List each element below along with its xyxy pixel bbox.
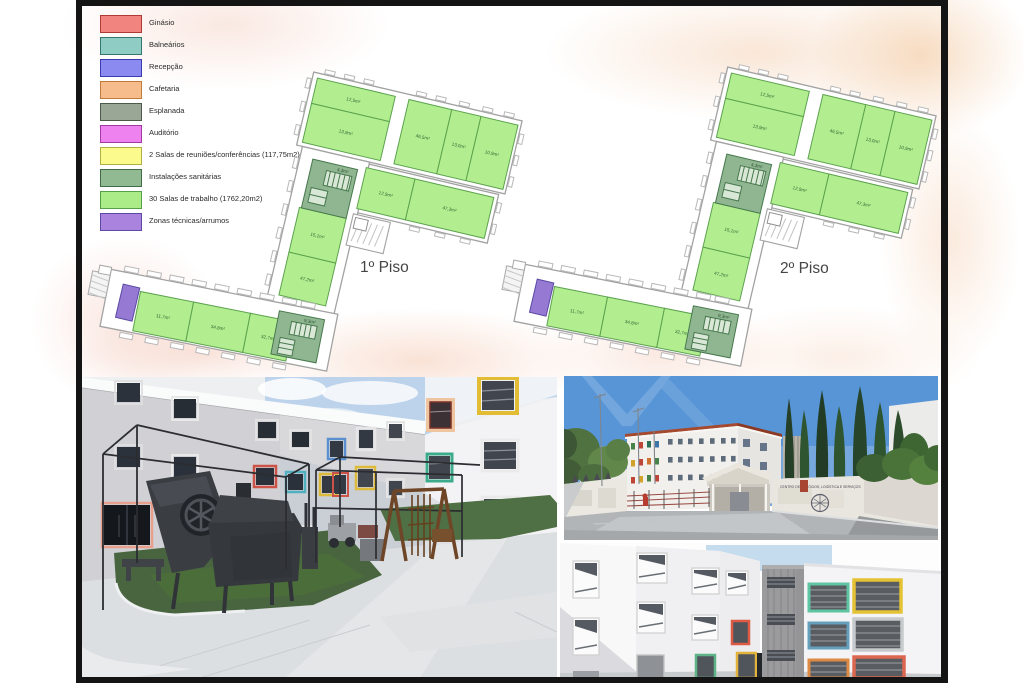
svg-text:1º Piso: 1º Piso — [360, 259, 409, 276]
svg-text:2º Piso: 2º Piso — [780, 260, 829, 277]
svg-text:CENTRO DE NEGÓCIOS, LOGÍSTICA: CENTRO DE NEGÓCIOS, LOGÍSTICA E SERVIÇOS — [780, 484, 861, 489]
